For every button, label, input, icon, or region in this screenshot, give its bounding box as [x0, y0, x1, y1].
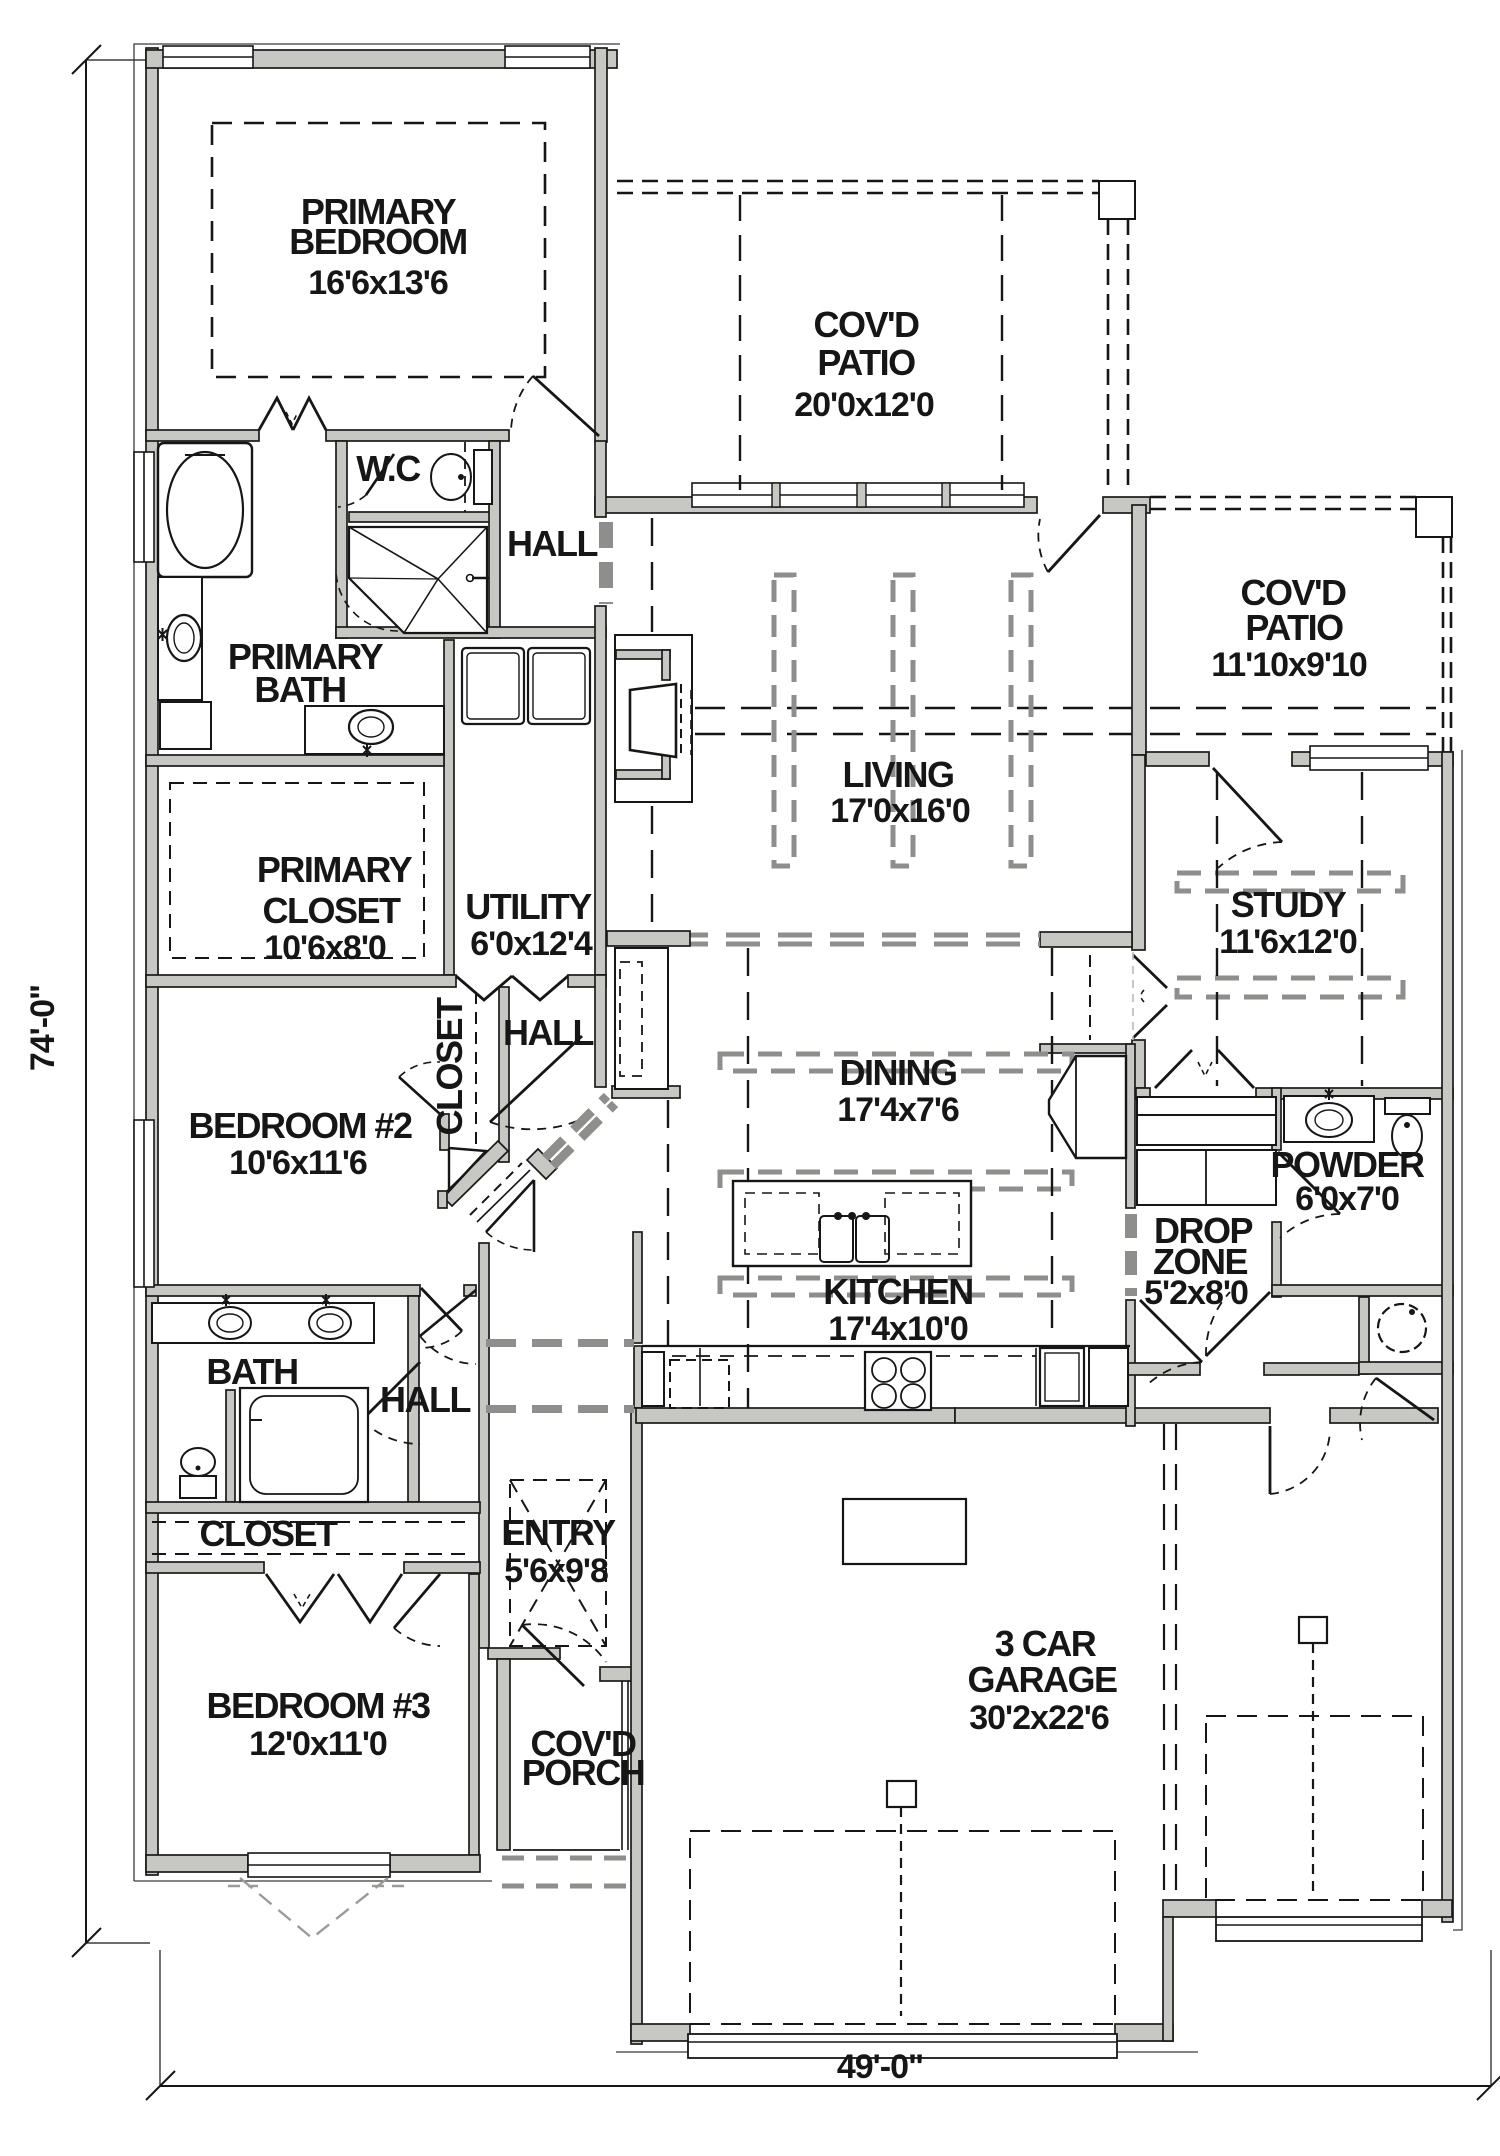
svg-text:3 CAR: 3 CAR — [995, 1623, 1097, 1664]
svg-text:6'0x12'4: 6'0x12'4 — [470, 925, 593, 963]
svg-text:CLOSET: CLOSET — [262, 890, 401, 931]
svg-text:ENTRY: ENTRY — [501, 1512, 616, 1553]
svg-text:HALL: HALL — [507, 523, 597, 564]
svg-text:LIVING: LIVING — [842, 754, 953, 795]
svg-text:11'10x9'10: 11'10x9'10 — [1211, 646, 1367, 684]
svg-text:PORCH: PORCH — [522, 1752, 645, 1793]
svg-text:17'4x7'6: 17'4x7'6 — [837, 1091, 959, 1129]
svg-text:W.C: W.C — [356, 448, 421, 489]
svg-text:STUDY: STUDY — [1231, 884, 1347, 925]
svg-text:GARAGE: GARAGE — [967, 1659, 1116, 1700]
svg-text:6'0x7'0: 6'0x7'0 — [1295, 1180, 1399, 1218]
svg-text:16'6x13'6: 16'6x13'6 — [308, 264, 448, 302]
svg-text:17'0x16'0: 17'0x16'0 — [830, 792, 970, 830]
svg-text:CLOSET: CLOSET — [199, 1513, 338, 1554]
svg-text:5'2x8'0: 5'2x8'0 — [1144, 1274, 1248, 1312]
svg-text:5'6x9'8: 5'6x9'8 — [504, 1552, 608, 1590]
svg-text:10'6x8'0: 10'6x8'0 — [264, 929, 386, 967]
svg-text:COV'D: COV'D — [813, 304, 919, 345]
svg-text:POWDER: POWDER — [1271, 1144, 1426, 1185]
svg-text:PATIO: PATIO — [1245, 607, 1343, 648]
svg-text:UTILITY: UTILITY — [465, 886, 592, 927]
svg-text:10'6x11'6: 10'6x11'6 — [229, 1144, 367, 1182]
svg-text:49'-0": 49'-0" — [837, 2048, 923, 2086]
svg-text:CLOSET: CLOSET — [429, 997, 470, 1136]
svg-text:12'0x11'0: 12'0x11'0 — [249, 1725, 387, 1763]
svg-text:PRIMARY: PRIMARY — [257, 849, 413, 890]
svg-text:BEDROOM #2: BEDROOM #2 — [188, 1105, 412, 1146]
svg-text:30'2x22'6: 30'2x22'6 — [969, 1699, 1109, 1737]
svg-text:17'4x10'0: 17'4x10'0 — [828, 1310, 968, 1348]
svg-text:HALL: HALL — [503, 1012, 593, 1053]
svg-text:BEDROOM: BEDROOM — [289, 221, 467, 262]
svg-text:DINING: DINING — [840, 1052, 957, 1093]
svg-text:20'0x12'0: 20'0x12'0 — [794, 386, 934, 424]
svg-text:KITCHEN: KITCHEN — [823, 1271, 973, 1312]
svg-text:BATH: BATH — [254, 669, 345, 710]
svg-text:HALL: HALL — [380, 1379, 470, 1420]
svg-text:PATIO: PATIO — [817, 342, 915, 383]
svg-text:BEDROOM #3: BEDROOM #3 — [206, 1685, 430, 1726]
svg-text:11'6x12'0: 11'6x12'0 — [1219, 923, 1357, 961]
svg-text:74'-0": 74'-0" — [24, 985, 62, 1071]
svg-text:BATH: BATH — [206, 1351, 297, 1392]
